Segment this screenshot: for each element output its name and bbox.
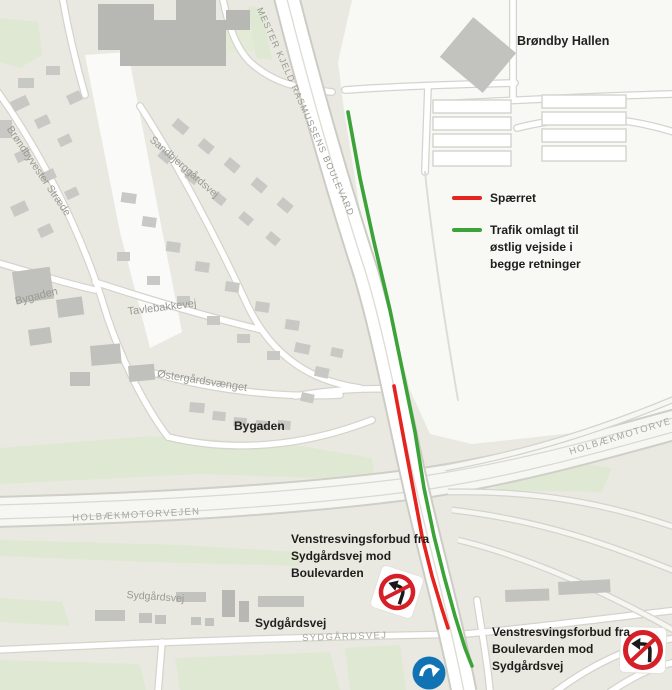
label-bygaden-lower: Bygaden <box>234 419 285 433</box>
label-sydgardsvej-black: Sydgårdsvej <box>255 616 326 630</box>
legend-omlagt-label: Trafik omlagt til østlig vejside i begge… <box>490 222 581 273</box>
legend: Spærret Trafik omlagt til østlig vejside… <box>452 190 581 288</box>
label-brondby-hallen: Brøndby Hallen <box>517 34 609 48</box>
mandatory-direction-sign <box>413 657 446 690</box>
legend-spaerret-label: Spærret <box>490 190 536 207</box>
annotation-no-left-from-boulevarden: Venstresvingsforbud fra Boulevarden mod … <box>492 624 630 675</box>
legend-row-spaerret: Spærret <box>452 190 581 207</box>
diverted-line-swatch <box>452 228 482 232</box>
closed-line-swatch <box>452 196 482 200</box>
legend-row-omlagt: Trafik omlagt til østlig vejside i begge… <box>452 222 581 273</box>
traffic-map: Brøndby Hallen MESTER KJELD RASMUSSENS B… <box>0 0 672 690</box>
annotation-no-left-from-sydgardsvej: Venstresvingsforbud fra Sydgårdsvej mod … <box>291 531 429 582</box>
map-canvas <box>0 0 672 690</box>
